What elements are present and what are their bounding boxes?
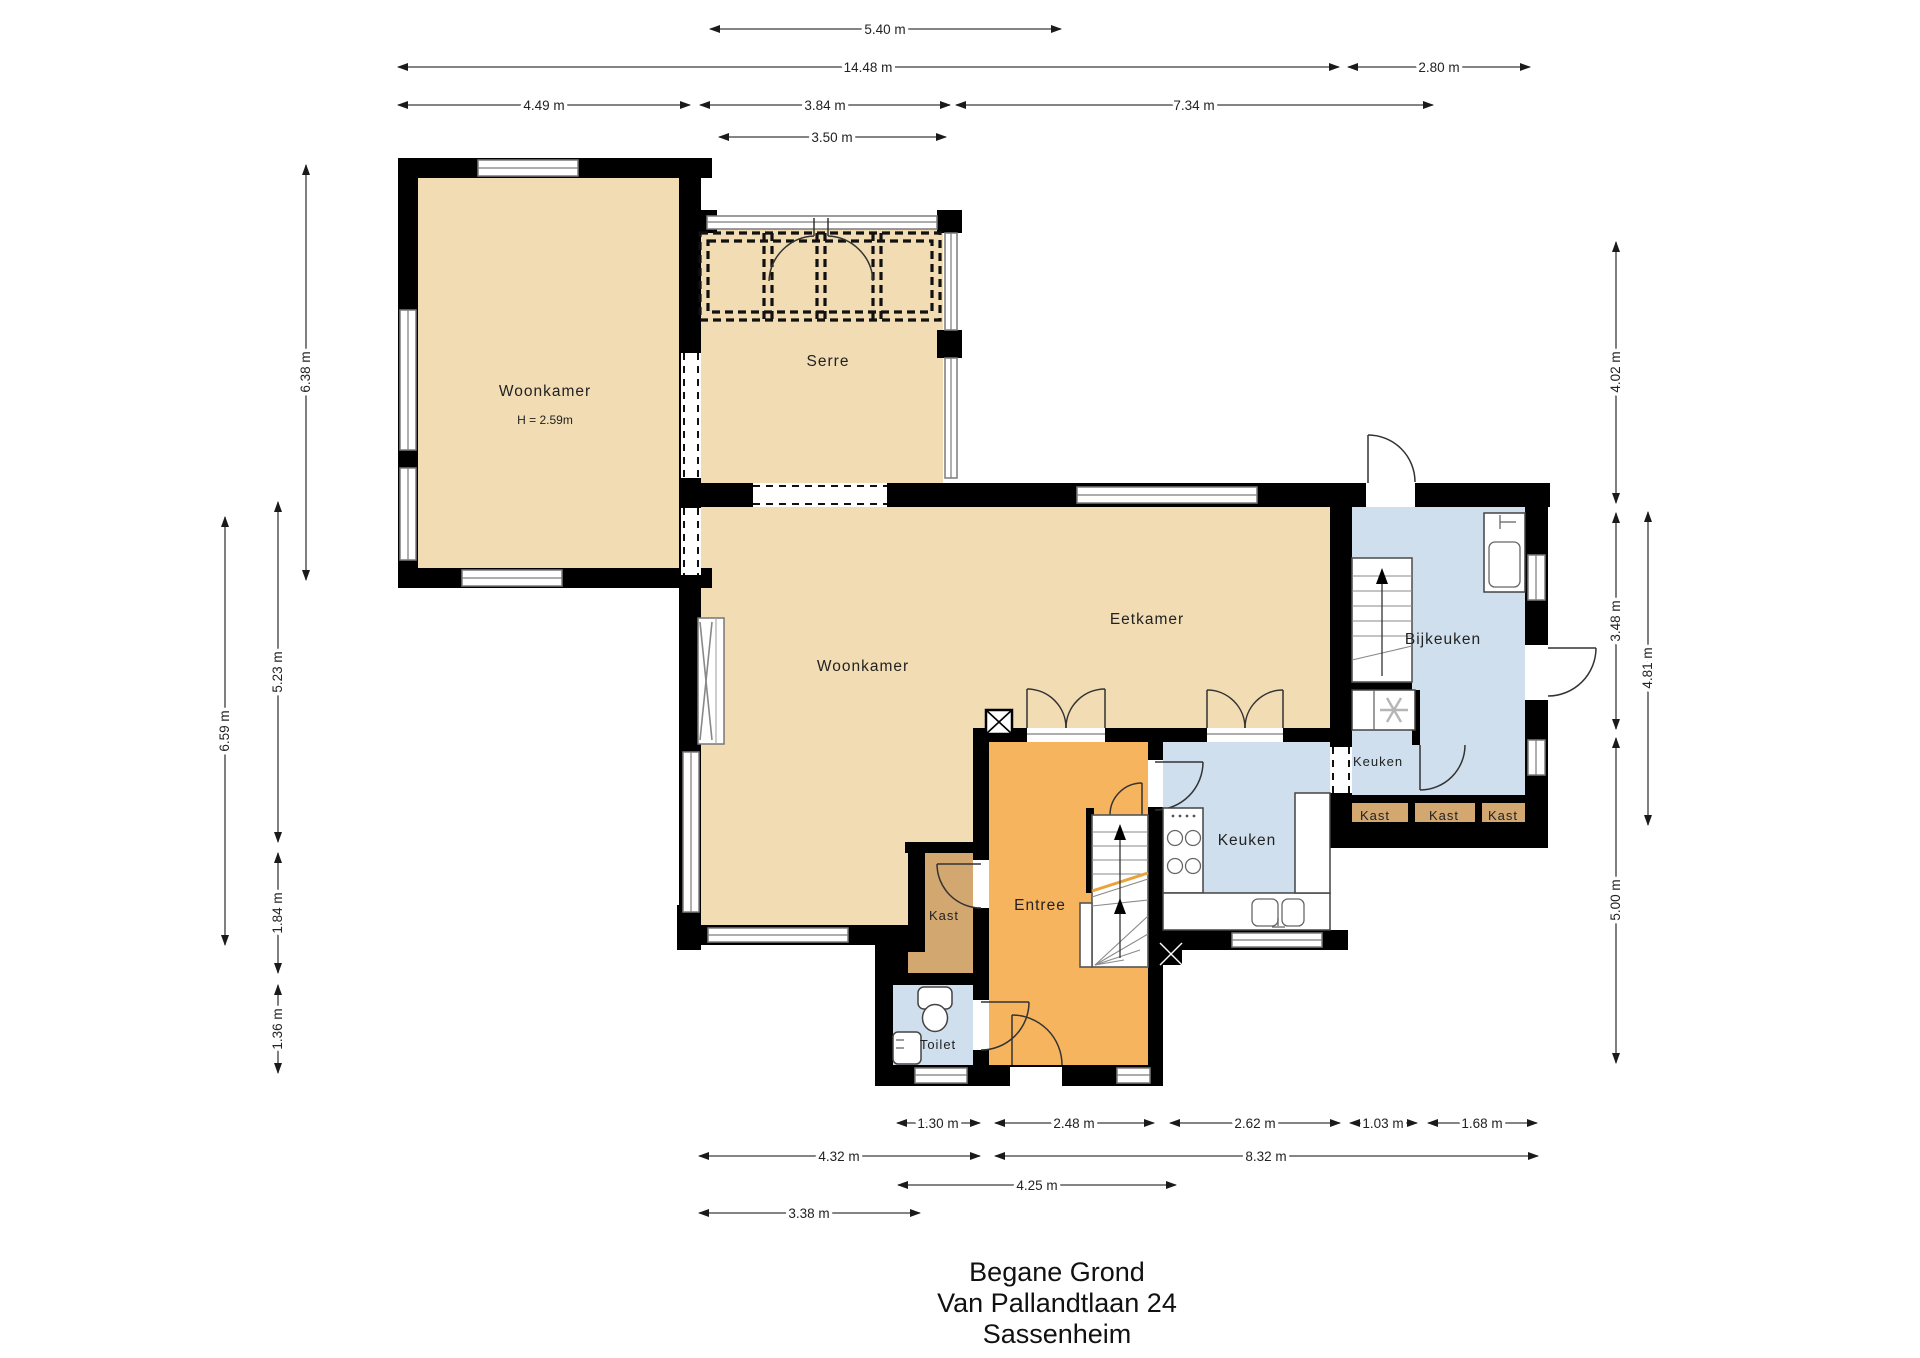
passage-serre-woonkamer-south	[753, 483, 887, 507]
svg-text:4.32 m: 4.32 m	[818, 1149, 859, 1164]
window	[462, 570, 562, 586]
label-eetkamer: Eetkamer	[1110, 611, 1184, 628]
svg-text:2.80 m: 2.80 m	[1418, 60, 1459, 75]
chimney-icon	[986, 710, 1012, 734]
dim-left-5-23-m: 5.23 m	[270, 502, 285, 842]
window	[1528, 555, 1545, 600]
dim-top-4-49-m: 4.49 m	[398, 98, 690, 113]
svg-text:1.36 m: 1.36 m	[270, 1008, 285, 1049]
hand-basin-icon	[893, 1032, 921, 1064]
label-keuken-bij: Keuken	[1353, 754, 1403, 769]
room-woonkamer-nw	[418, 178, 692, 568]
dim-left-6-59-m: 6.59 m	[217, 517, 232, 945]
passage-keuken-keuken-bij	[1330, 747, 1352, 793]
svg-text:4.49 m: 4.49 m	[523, 98, 564, 113]
sink-unit-icon	[1484, 513, 1525, 592]
dim-bottom-8-32-m: 8.32 m	[995, 1149, 1538, 1164]
svg-text:1.84 m: 1.84 m	[270, 892, 285, 933]
dim-top-2-80-m: 2.80 m	[1348, 60, 1530, 75]
window	[1232, 933, 1322, 947]
svg-text:8.32 m: 8.32 m	[1245, 1149, 1286, 1164]
window	[683, 752, 699, 912]
label-woonkamer-nw: Woonkamer	[499, 383, 591, 400]
label-kast-3: Kast	[1488, 808, 1518, 823]
dim-right-4-81-m: 4.81 m	[1640, 512, 1655, 825]
dim-right-3-48-m: 3.48 m	[1608, 513, 1623, 729]
svg-text:3.50 m: 3.50 m	[811, 130, 852, 145]
dim-top-3-84-m: 3.84 m	[700, 98, 950, 113]
svg-text:4.81 m: 4.81 m	[1640, 647, 1655, 688]
dim-right-4-02-m: 4.02 m	[1608, 242, 1623, 503]
floorplan-drawing: Woonkamer H = 2.59m Serre Woonkamer Eetk…	[0, 0, 1920, 1358]
dim-bottom-1-30-m: 1.30 m	[897, 1116, 980, 1131]
svg-text:3.38 m: 3.38 m	[788, 1206, 829, 1221]
dim-bottom-1-68-m: 1.68 m	[1428, 1116, 1537, 1131]
label-ceiling-height: H = 2.59m	[517, 413, 573, 427]
svg-text:6.59 m: 6.59 m	[217, 710, 232, 751]
label-serre: Serre	[807, 353, 850, 370]
window	[400, 310, 416, 450]
window	[945, 233, 957, 330]
dim-top-7-34-m: 7.34 m	[956, 98, 1433, 113]
dim-right-5-00-m: 5.00 m	[1608, 738, 1623, 1063]
title-line-1: Begane Grond	[969, 1257, 1145, 1287]
door-swing	[1525, 645, 1596, 700]
svg-text:14.48 m: 14.48 m	[844, 60, 893, 75]
dim-top-5-40-m: 5.40 m	[710, 22, 1061, 37]
label-toilet: Toilet	[920, 1037, 956, 1052]
dim-top-14-48-m: 14.48 m	[398, 60, 1339, 75]
svg-text:1.30 m: 1.30 m	[917, 1116, 958, 1131]
window	[1528, 740, 1545, 775]
ventilation-unit	[1352, 690, 1415, 730]
window	[915, 1068, 967, 1083]
floorplan-page: Woonkamer H = 2.59m Serre Woonkamer Eetk…	[0, 0, 1920, 1358]
svg-text:4.25 m: 4.25 m	[1016, 1178, 1057, 1193]
svg-text:5.23 m: 5.23 m	[270, 651, 285, 692]
dim-bottom-2-48-m: 2.48 m	[995, 1116, 1154, 1131]
dim-left-6-38-m: 6.38 m	[298, 165, 313, 580]
svg-text:1.68 m: 1.68 m	[1461, 1116, 1502, 1131]
chimney-icon	[698, 618, 724, 744]
label-keuken: Keuken	[1218, 832, 1277, 849]
dim-bottom-4-32-m: 4.32 m	[699, 1149, 980, 1164]
label-kast-1: Kast	[1360, 808, 1390, 823]
door-swing	[1366, 435, 1415, 507]
window	[400, 468, 416, 560]
dim-left-1-84-m: 1.84 m	[270, 853, 285, 973]
svg-text:3.84 m: 3.84 m	[804, 98, 845, 113]
title-line-3: Sassenheim	[983, 1319, 1132, 1349]
svg-text:1.03 m: 1.03 m	[1362, 1116, 1403, 1131]
svg-text:6.38 m: 6.38 m	[298, 351, 313, 392]
passage-woonkamer-nw-main	[681, 508, 701, 575]
label-woonkamer: Woonkamer	[817, 658, 909, 675]
svg-text:4.02 m: 4.02 m	[1608, 351, 1623, 392]
window	[478, 160, 578, 176]
svg-text:3.48 m: 3.48 m	[1608, 600, 1623, 641]
chimney-icon	[1160, 943, 1182, 965]
svg-text:2.62 m: 2.62 m	[1234, 1116, 1275, 1131]
window	[945, 358, 957, 478]
plan-title: Begane Grond Van Pallandtlaan 24 Sassenh…	[937, 1257, 1177, 1349]
dim-bottom-2-62-m: 2.62 m	[1170, 1116, 1340, 1131]
window	[1077, 487, 1257, 503]
label-kast-2: Kast	[1429, 808, 1459, 823]
stove-icon	[1163, 808, 1203, 893]
dim-bottom-1-03-m: 1.03 m	[1350, 1116, 1417, 1131]
window	[708, 928, 848, 942]
label-bijkeuken: Bijkeuken	[1405, 631, 1481, 648]
svg-text:2.48 m: 2.48 m	[1053, 1116, 1094, 1131]
svg-text:5.00 m: 5.00 m	[1608, 879, 1623, 920]
dim-left-1-36-m: 1.36 m	[270, 985, 285, 1073]
staircase-bijkeuken	[1352, 558, 1412, 682]
label-entree: Entree	[1014, 897, 1066, 914]
dim-bottom-4-25-m: 4.25 m	[898, 1178, 1176, 1193]
window	[1117, 1068, 1150, 1083]
svg-text:7.34 m: 7.34 m	[1173, 98, 1214, 113]
dim-bottom-3-38-m: 3.38 m	[699, 1206, 920, 1221]
label-kast: Kast	[929, 908, 959, 923]
svg-text:5.40 m: 5.40 m	[864, 22, 905, 37]
dim-top-3-50-m: 3.50 m	[719, 130, 946, 145]
passage-woonkamer-serre	[681, 353, 701, 478]
title-line-2: Van Pallandtlaan 24	[937, 1288, 1177, 1318]
